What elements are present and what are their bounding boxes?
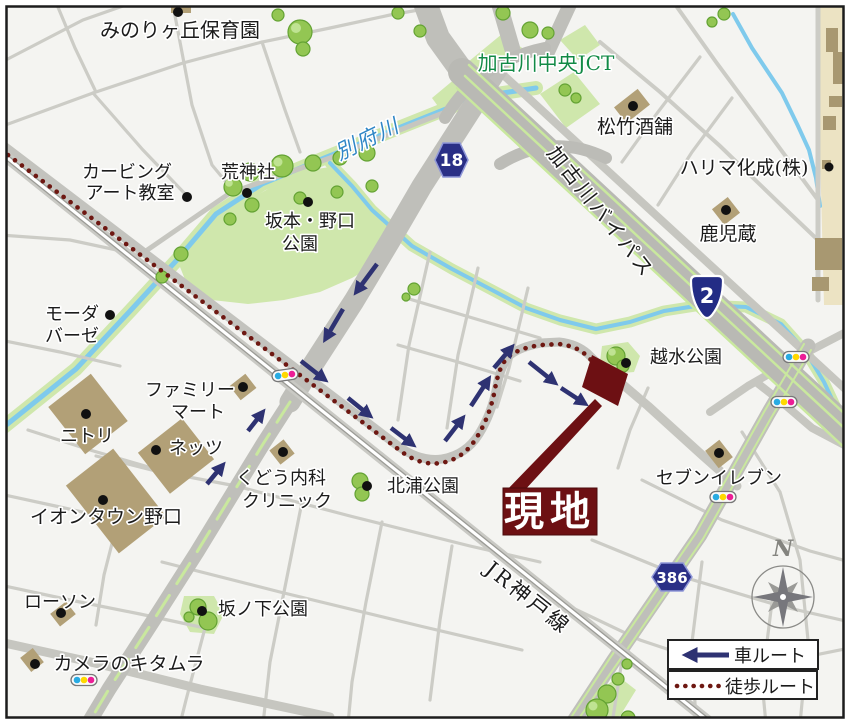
- traffic-light-icon: [783, 352, 809, 363]
- site-label: 現地: [504, 488, 596, 535]
- label-kitaura-park: 北浦公園: [387, 476, 459, 497]
- label-camera-kitamura: カメラのキタムラ: [53, 653, 204, 675]
- access-map: 18 2 386 みのりヶ丘保育園: [0, 0, 850, 724]
- label-carving-line2: アート教室: [86, 183, 175, 204]
- label-minorigaoka-nursery: みのりヶ丘保育園: [100, 18, 260, 42]
- route-18-number: 18: [440, 151, 464, 171]
- label-lawson: ローソン: [24, 592, 96, 613]
- route-2-number: 2: [700, 284, 715, 308]
- label-kajigura: 鹿児蔵: [699, 223, 756, 245]
- label-netz: ネッツ: [169, 438, 223, 459]
- legend-car-label: 車ルート: [734, 646, 806, 667]
- legend-walk-label: 徒歩ルート: [725, 677, 815, 698]
- traffic-light-icon: [771, 397, 797, 408]
- label-carving-line1: カービング: [82, 162, 172, 183]
- label-family-mart-line2: マート: [171, 402, 225, 423]
- label-kudo-clinic-line2: クリニック: [242, 491, 332, 512]
- traffic-light-icon: [710, 492, 736, 503]
- label-nitori: ニトリ: [60, 426, 114, 447]
- route-386-number: 386: [656, 569, 687, 587]
- route-badge-18: 18: [435, 143, 468, 177]
- label-sakanoshita-park: 坂ノ下公園: [218, 599, 308, 620]
- route-badge-386: 386: [652, 563, 692, 591]
- compass-rose-icon: [752, 566, 814, 628]
- traffic-light-icon: [71, 675, 97, 686]
- label-seven-eleven: セブンイレブン: [656, 467, 782, 489]
- label-harima-kasei: ハリマ化成(株): [680, 157, 809, 179]
- label-kakogawa-chuo-jct: 加古川中央JCT: [478, 51, 615, 75]
- label-koshimizu-park: 越水公園: [650, 347, 722, 368]
- label-sakamoto-park-line2: 公園: [282, 234, 318, 255]
- label-kudo-clinic-line1: くどう内科: [236, 468, 326, 489]
- label-family-mart-line1: ファミリー: [145, 380, 235, 401]
- map-canvas: 18 2 386 みのりヶ丘保育園: [0, 0, 850, 724]
- label-shochiku-sakaho: 松竹酒舗: [597, 116, 673, 138]
- label-moda-line2: バーゼ: [45, 326, 99, 347]
- label-moda-line1: モーダ: [45, 304, 99, 325]
- label-kojinja-shrine: 荒神社: [221, 162, 275, 183]
- compass-north-label: N: [772, 536, 794, 562]
- label-sakamoto-park-line1: 坂本・野口: [265, 211, 355, 232]
- label-aeon-town: イオンタウン野口: [30, 506, 182, 528]
